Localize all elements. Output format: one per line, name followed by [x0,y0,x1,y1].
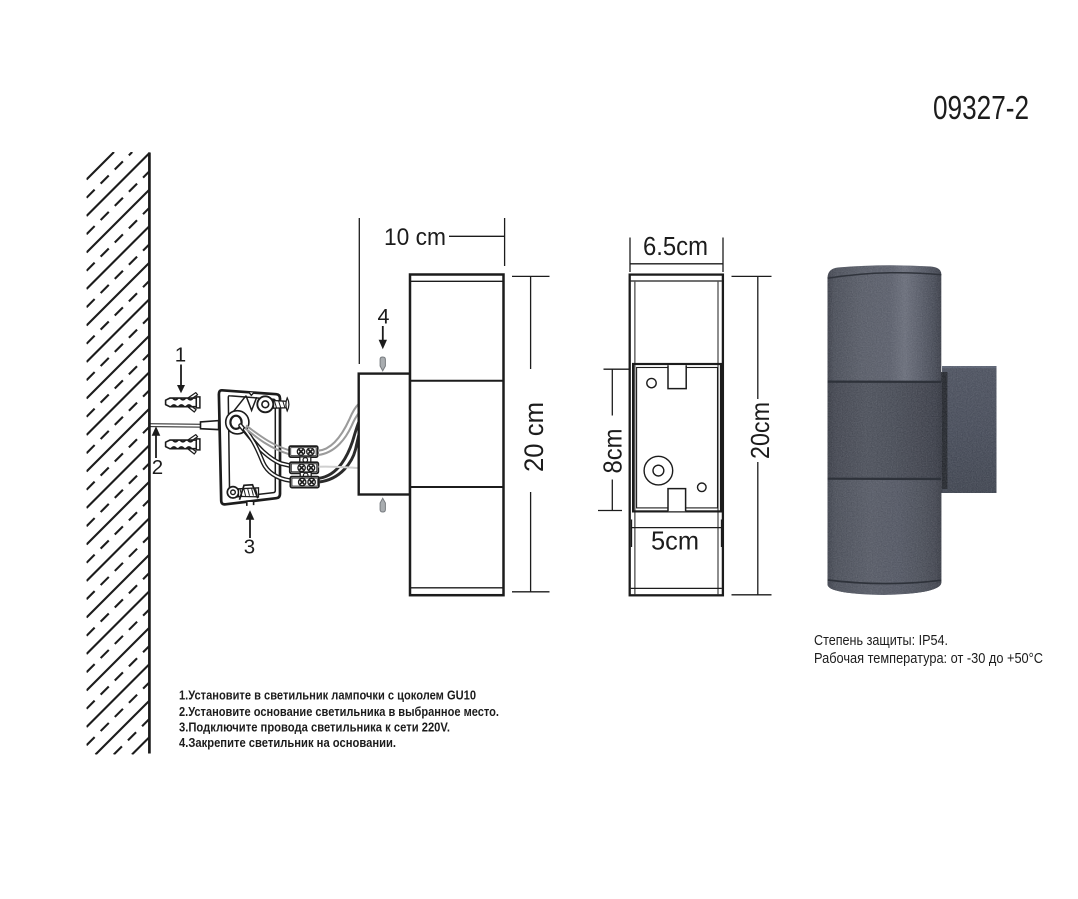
svg-text:2.Установите основание светиль: 2.Установите основание светильника в выб… [179,704,499,719]
svg-text:1: 1 [175,344,186,367]
svg-text:3.Подключите провода светильни: 3.Подключите провода светильника к сети … [179,720,450,735]
svg-text:10 cm: 10 cm [384,224,446,251]
svg-text:Степень защиты: IP54.: Степень защиты: IP54. [814,633,948,649]
svg-text:2: 2 [152,456,163,479]
svg-text:3: 3 [244,536,255,559]
svg-text:09327-2: 09327-2 [933,89,1029,126]
svg-text:5cm: 5cm [651,526,699,556]
svg-text:Рабочая температура: от -30 до: Рабочая температура: от -30 до +50°C [814,651,1043,667]
svg-text:6.5cm: 6.5cm [643,233,708,261]
svg-text:8cm: 8cm [598,429,628,474]
svg-text:4: 4 [378,305,390,329]
svg-text:20cm: 20cm [745,402,775,459]
svg-text:4.Закрепите светильник на осно: 4.Закрепите светильник на основании. [179,735,396,750]
svg-text:20 cm: 20 cm [519,402,549,472]
svg-text:1.Установите в светильник ламп: 1.Установите в светильник лампочки с цок… [179,688,476,703]
